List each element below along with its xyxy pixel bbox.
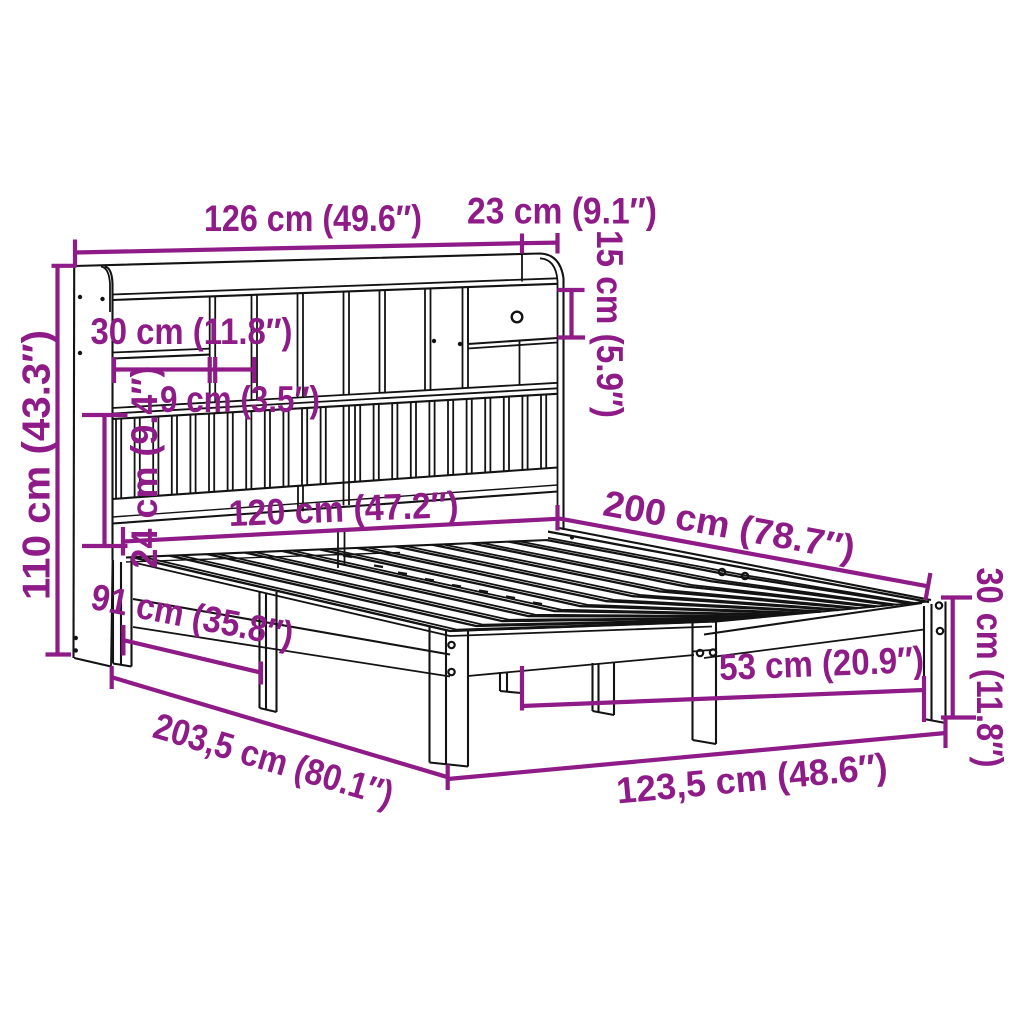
- svg-text:15 cm (5.9″): 15 cm (5.9″): [589, 230, 630, 418]
- svg-text:30 cm (11.8″): 30 cm (11.8″): [969, 568, 1010, 768]
- svg-text:53 cm (20.9″): 53 cm (20.9″): [718, 639, 924, 688]
- svg-text:110 cm (43.3″): 110 cm (43.3″): [16, 330, 59, 600]
- svg-text:30 cm (11.8″): 30 cm (11.8″): [91, 311, 293, 352]
- svg-text:9 cm (3.5″): 9 cm (3.5″): [160, 379, 320, 420]
- svg-text:126 cm (49.6″): 126 cm (49.6″): [204, 198, 422, 239]
- svg-text:23 cm (9.1″): 23 cm (9.1″): [467, 191, 657, 232]
